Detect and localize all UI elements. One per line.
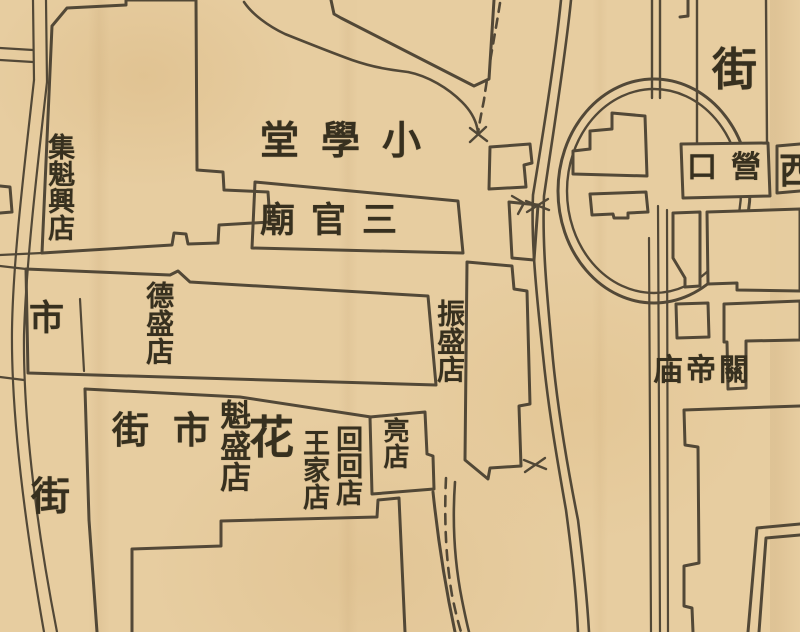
building-circle-stepped (573, 113, 647, 176)
block-bottom-west-edge (85, 389, 97, 632)
label-kuishengdian: 魁盛店 (216, 399, 248, 492)
label-yingkou: 口營 (687, 152, 775, 183)
label-deshengdian: 德盛店 (144, 281, 173, 365)
curved-road (533, 0, 589, 632)
fragment-left-edge (0, 186, 12, 213)
compound-bottom-right-inner (759, 535, 800, 632)
building-circle-rect (590, 192, 648, 218)
building-jikuixingdian (42, 0, 270, 253)
label-zhenshengdian: 振盛店 (435, 299, 464, 383)
label-wangjiadian: 王家店 (299, 429, 327, 510)
label-jie-top-right: 街 (712, 47, 757, 94)
label-jikuixingdian: 集魁興店 (44, 133, 72, 241)
street-right (649, 206, 668, 632)
map-canvas: 集魁興店 堂學小 廟官三 德盛店 振盛店 市 街 街市 花 魁盛店 王家店 回回… (0, 0, 800, 632)
building-bottom-stepped (132, 498, 405, 632)
building-deshengdian (26, 269, 436, 385)
building-right-3 (676, 303, 709, 338)
block-bottom-east-edge (433, 492, 455, 632)
map-linework (0, 0, 800, 632)
fragment-top-right (680, 0, 688, 17)
building-right-2 (707, 209, 800, 291)
label-xiaoxuetang: 堂學小 (260, 122, 443, 163)
label-sanguanmiao: 廟官三 (260, 203, 413, 239)
label-guandimiao: 庙帝關 (653, 355, 752, 386)
label-liangdian: 亮店 (380, 417, 407, 469)
building-right-1 (673, 212, 700, 287)
label-jie-street-lower: 街 (31, 478, 70, 519)
label-hua: 花 (249, 415, 294, 462)
label-shi-street-upper: 市 (29, 301, 64, 337)
label-huihuidian: 回回店 (332, 425, 360, 506)
compound-bottom-right-outer (748, 524, 800, 632)
building-strip (465, 262, 530, 479)
label-xi: 西 (779, 153, 800, 190)
building-right-5 (684, 406, 800, 632)
building-junction-house (489, 144, 532, 189)
